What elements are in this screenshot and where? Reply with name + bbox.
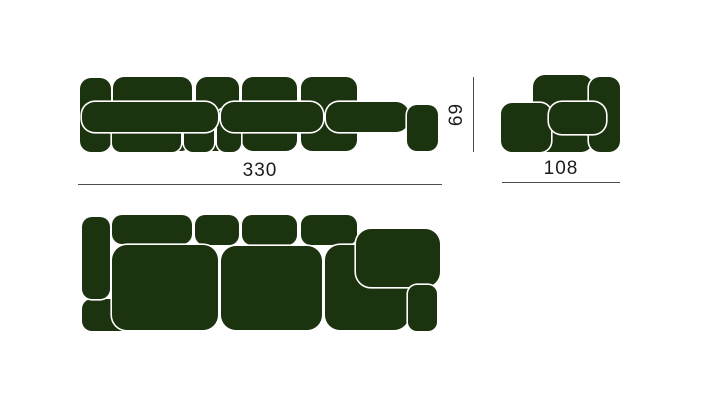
top-seat-2 (221, 246, 322, 330)
top-back-cushion-1 (112, 215, 192, 244)
side-seat-base (501, 103, 551, 152)
width-dimension-line (78, 184, 442, 185)
top-seat-1 (112, 245, 218, 330)
front-end-module (407, 105, 438, 151)
width-dimension-label: 330 (78, 161, 442, 180)
top-back-cushion-2 (195, 215, 239, 245)
depth-dimension-line (502, 182, 620, 183)
top-back-cushion-3 (242, 215, 297, 245)
top-corner-module (408, 285, 437, 331)
front-seat-rail-1 (82, 102, 218, 132)
side-seat-cushion (549, 102, 606, 134)
top-back-cushion-4 (301, 215, 357, 245)
top-chaise-module (356, 229, 440, 287)
sofa-dimension-diagram: 330 108 69 (0, 0, 703, 417)
top-left-armrest (82, 217, 110, 299)
height-dimension-line (473, 77, 474, 152)
front-seat-rail-3 (326, 102, 409, 132)
height-dimension-label: 69 (443, 77, 471, 152)
depth-dimension-label: 108 (502, 159, 620, 178)
front-seat-rail-2 (221, 102, 323, 132)
